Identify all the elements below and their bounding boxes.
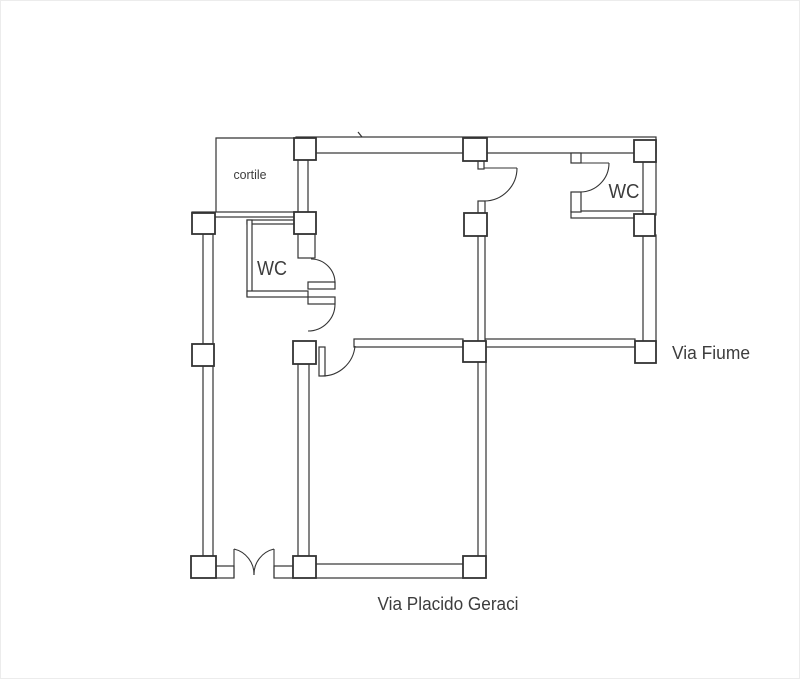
stray-mark — [358, 132, 362, 137]
door-arc — [580, 163, 609, 192]
wall-bottom-left-a — [216, 566, 234, 578]
wall-bottomroom-right — [478, 361, 486, 557]
wall-wc-right-stub — [571, 153, 581, 163]
entrance-door-arc — [234, 549, 254, 575]
pillar — [463, 556, 486, 578]
floorplan-canvas: cortile WC WC Via Fiume Via Placido Gera… — [0, 0, 800, 679]
wall-middle-left — [354, 339, 463, 347]
pillar — [464, 213, 487, 236]
pillar — [293, 341, 316, 364]
door-arc — [308, 304, 335, 331]
wall-corridor-lower — [298, 364, 309, 556]
walls — [192, 137, 656, 578]
wall-wc-left-top — [247, 220, 298, 224]
wall-wc-right-side — [571, 192, 581, 212]
wall-door-bar-upper — [308, 282, 335, 289]
wall-bottom-left-b — [274, 566, 293, 578]
pillar — [463, 138, 487, 161]
wall-bottomroom-bottom — [315, 564, 464, 578]
street-label-right: Via Fiume — [672, 343, 750, 363]
wall-wc-left-bottom — [247, 291, 308, 297]
pillar — [192, 344, 214, 366]
wall-right-lower — [643, 235, 656, 342]
wall-corridor-upper — [298, 159, 308, 213]
wall-corridor-stub — [298, 234, 315, 258]
street-label-bottom: Via Placido Geraci — [378, 594, 519, 614]
pillar — [634, 140, 656, 162]
door-arc — [322, 346, 355, 376]
pillar — [463, 341, 486, 362]
pillar — [191, 556, 216, 578]
pillar — [634, 214, 655, 236]
wc-left-label: WC — [257, 258, 287, 280]
courtyard-label: cortile — [234, 167, 267, 182]
pillar — [635, 341, 656, 363]
wall-leftwing-left-lower — [203, 366, 213, 556]
pillars — [191, 138, 656, 578]
doors — [234, 163, 609, 578]
wall-right-upper — [643, 161, 656, 215]
door-arc — [484, 168, 517, 201]
pillar — [294, 138, 316, 160]
door-arc — [311, 259, 335, 283]
pillar — [192, 213, 215, 234]
wall-door-bar-lower — [308, 297, 335, 304]
wc-right-label: WC — [609, 181, 640, 203]
wall-wc-left-side — [247, 220, 252, 296]
entrance-door-arc — [254, 549, 274, 575]
pillar — [294, 212, 316, 234]
wall-wc-right-bottom — [571, 211, 643, 218]
wall-leftwing-left-upper — [203, 234, 213, 344]
pillar — [293, 556, 316, 578]
door-leaf — [319, 347, 325, 376]
floorplan-svg: cortile WC WC Via Fiume Via Placido Gera… — [1, 1, 800, 679]
wall-middle-right — [485, 339, 635, 347]
